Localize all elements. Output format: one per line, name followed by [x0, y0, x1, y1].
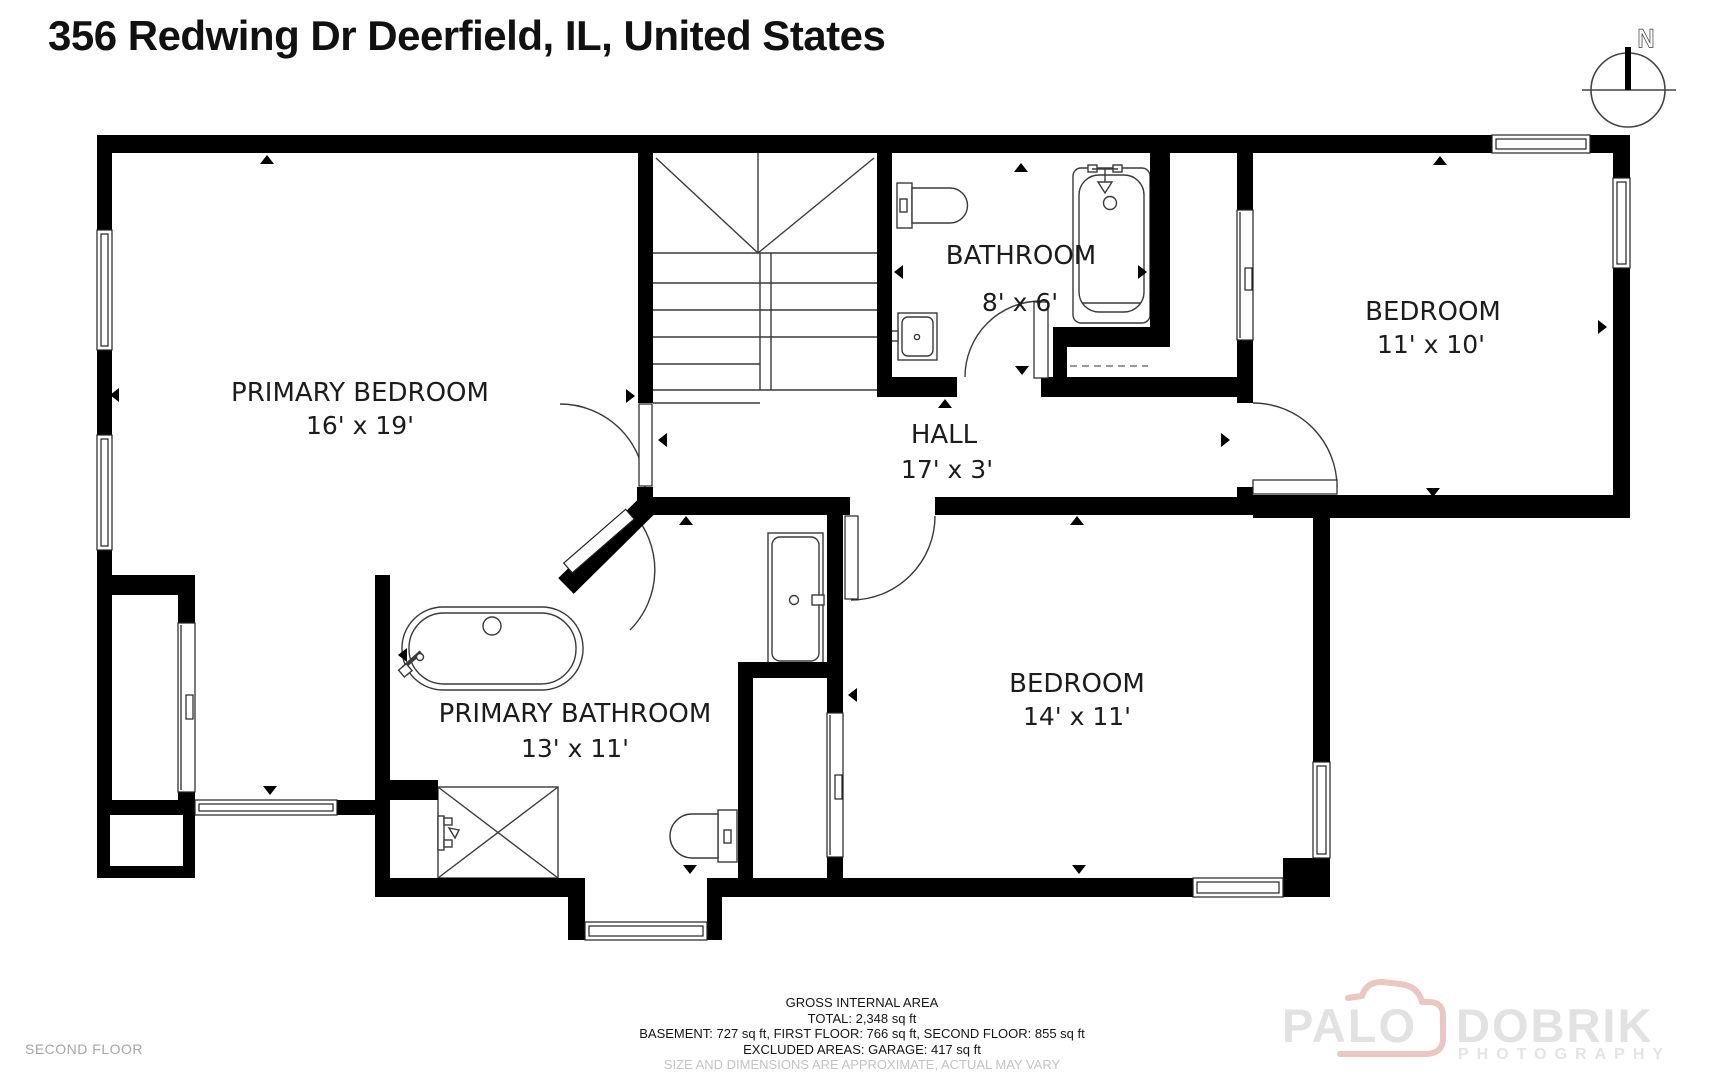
watermark: PALO DOBRIK PHOTOGRAPHY: [1278, 972, 1729, 1072]
floorplan-drawing: N PRIMARY BEDROOM 16' x 19' BATHROOM 8' …: [0, 0, 1729, 1080]
window: [97, 230, 112, 350]
floor-label: SECOND FLOOR: [25, 1041, 143, 1057]
freestanding-tub-icon: [399, 607, 583, 690]
area-summary-disclaimer: SIZE AND DIMENSIONS ARE APPROXIMATE, ACT…: [562, 1057, 1162, 1073]
area-summary-title: GROSS INTERNAL AREA: [562, 995, 1162, 1011]
room-label-bathroom: BATHROOM: [946, 241, 1096, 271]
primary-toilet-icon: [670, 810, 737, 862]
window: [97, 435, 112, 550]
window: [1193, 878, 1283, 897]
camera-icon: [1330, 974, 1460, 1064]
floorplan-page: 356 Redwing Dr Deerfield, IL, United Sta…: [0, 0, 1729, 1080]
vanity-sink-icon: [768, 533, 824, 665]
room-dims-bathroom: 8' x 6': [982, 288, 1058, 317]
staircase: [653, 153, 877, 403]
room-label-bedroom-14x11: BEDROOM: [1009, 669, 1145, 699]
sliding-door: [178, 623, 195, 792]
room-dims-bedroom-14x11: 14' x 11': [1023, 702, 1131, 731]
room-label-primary-bedroom: PRIMARY BEDROOM: [231, 378, 489, 408]
compass-icon: N: [1582, 25, 1676, 127]
sliding-door: [827, 713, 843, 857]
area-summary-floors: BASEMENT: 727 sq ft, FIRST FLOOR: 766 sq…: [562, 1026, 1162, 1042]
room-label-hall: HALL: [911, 420, 978, 450]
bathroom-toilet-icon: [897, 183, 968, 228]
room-label-primary-bathroom: PRIMARY BATHROOM: [439, 699, 712, 729]
window: [1492, 135, 1590, 153]
window: [1313, 762, 1330, 858]
room-dims-primary-bedroom: 16' x 19': [306, 411, 414, 440]
sliding-door: [1237, 210, 1253, 340]
room-dims-primary-bathroom: 13' x 11': [521, 734, 629, 763]
watermark-brand-right: DOBRIK: [1456, 998, 1653, 1053]
watermark-subtitle: PHOTOGRAPHY: [1458, 1046, 1671, 1064]
window: [195, 800, 337, 815]
shower-icon: [438, 787, 558, 878]
area-summary-excluded: EXCLUDED AREAS: GARAGE: 417 sq ft: [562, 1042, 1162, 1058]
room-dims-bedroom-11x10: 11' x 10': [1377, 330, 1485, 359]
area-summary-total: TOTAL: 2,348 sq ft: [562, 1011, 1162, 1027]
room-label-bedroom-11x10: BEDROOM: [1365, 297, 1501, 327]
room-dims-hall: 17' x 3': [901, 455, 993, 484]
bathroom-sink-icon: [889, 313, 937, 360]
compass-north-label: N: [1637, 25, 1655, 53]
area-summary: GROSS INTERNAL AREA TOTAL: 2,348 sq ft B…: [562, 995, 1162, 1073]
window: [585, 922, 707, 940]
window: [1613, 178, 1630, 268]
